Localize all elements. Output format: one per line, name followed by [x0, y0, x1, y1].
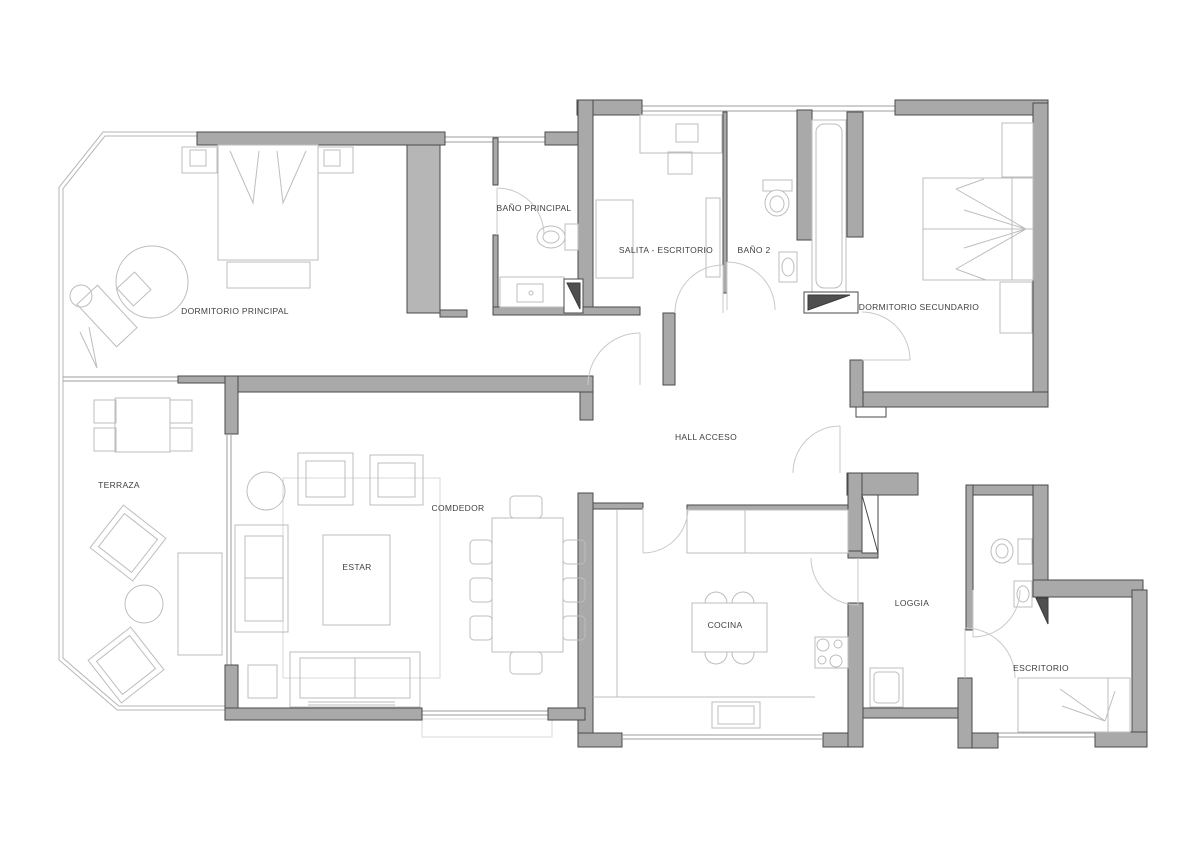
desk-salita — [640, 115, 722, 174]
door-entrada — [793, 426, 840, 473]
door-loggia — [811, 558, 858, 605]
room-label-dormitorio-principal: DORMITORIO PRINCIPAL — [181, 306, 289, 316]
window-estar-terraza — [227, 435, 231, 665]
room-label-comdedor: COMDEDOR — [432, 503, 485, 513]
window-dormsec-small — [856, 407, 886, 417]
daybed-salita — [596, 200, 633, 278]
terrace-lounge-chairs — [88, 505, 166, 703]
threshold-bano2 — [804, 292, 858, 313]
room-label-terraza: TERRAZA — [98, 480, 140, 490]
toilet-bano2 — [763, 180, 792, 216]
desk-corner — [70, 272, 151, 368]
living-set — [235, 453, 440, 707]
window-salita-top — [642, 106, 895, 111]
window-comedor — [422, 711, 552, 737]
bed-principal — [182, 145, 353, 288]
room-label-estar: ESTAR — [342, 562, 371, 572]
bed-escritorio — [1018, 678, 1130, 732]
window-escritorio — [998, 733, 1095, 737]
door-vestibulo — [588, 333, 640, 385]
floor-plan-drawing: DORMITORIO PRINCIPAL BAÑO PRINCIPAL SALI… — [0, 0, 1191, 842]
window-bedroom-south — [63, 377, 178, 381]
room-label-cocina: COCINA — [708, 620, 743, 630]
hall-closet — [862, 495, 878, 553]
washing-machine — [870, 668, 903, 707]
room-label-salita-escritorio: SALITA - ESCRITORIO — [619, 245, 713, 255]
door-salita — [675, 265, 723, 313]
room-label-dormitorio-secundario: DORMITORIO SECUNDARIO — [859, 302, 980, 312]
threshold-bano3 — [1036, 598, 1048, 624]
vanity-principal — [500, 277, 564, 307]
dining-set — [470, 496, 585, 674]
stove — [815, 637, 848, 668]
sink-bano3 — [1014, 581, 1032, 607]
toilet-bano3 — [991, 539, 1032, 564]
room-label-bano-principal: BAÑO PRINCIPAL — [497, 203, 572, 213]
room-label-hall-acceso: HALL ACCESO — [675, 432, 737, 442]
bathtub-bano2 — [812, 120, 846, 292]
terrace-boundary — [61, 134, 225, 708]
room-label-bano-2: BAÑO 2 — [738, 245, 771, 255]
door-bano2 — [727, 262, 775, 310]
room-label-loggia: LOGGIA — [895, 598, 929, 608]
sink-bano2 — [779, 252, 797, 282]
door-dormitorio-secundario — [862, 312, 910, 360]
terrace-planter — [178, 553, 222, 655]
wardrobe — [407, 145, 440, 313]
window-cocina — [623, 735, 822, 739]
terrace-dining-set — [94, 398, 192, 452]
floor-plan-page: DORMITORIO PRINCIPAL BAÑO PRINCIPAL SALI… — [0, 0, 1191, 842]
shower-principal — [564, 279, 583, 313]
door-cocina — [643, 508, 688, 553]
room-label-escritorio: ESCRITORIO — [1013, 663, 1069, 673]
